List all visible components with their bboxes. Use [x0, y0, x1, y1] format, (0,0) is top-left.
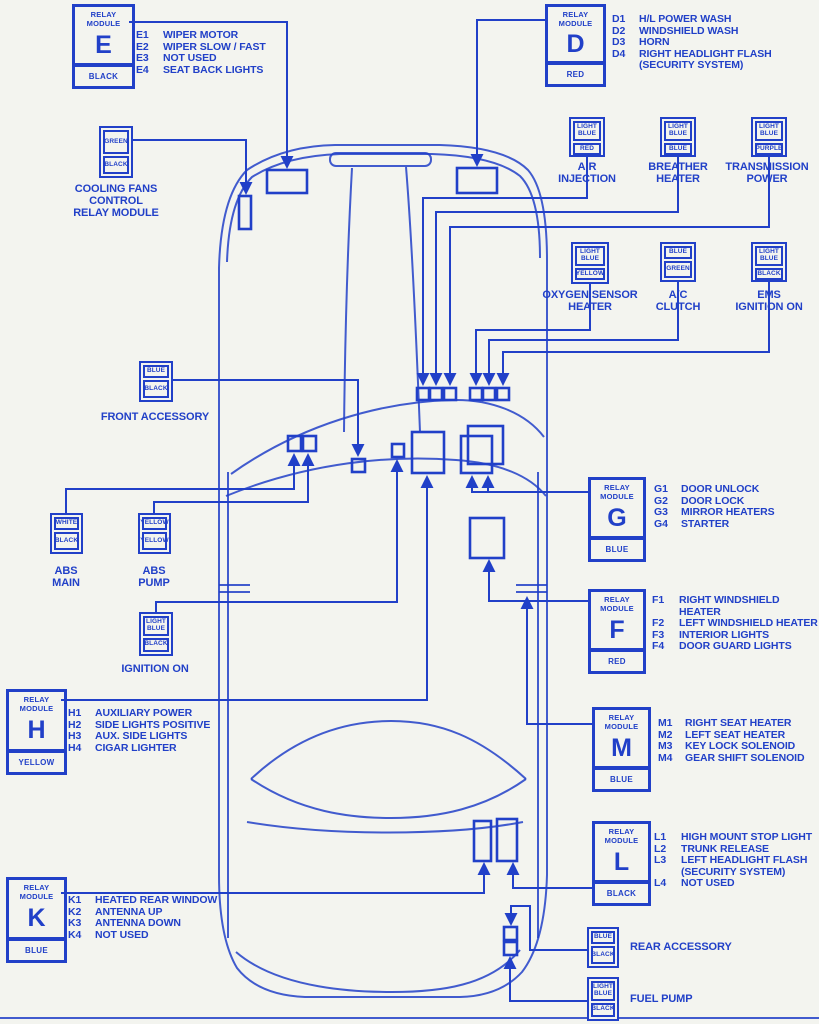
legend-row: K3ANTENNA DOWN: [68, 918, 217, 930]
legend-row: E3NOT USED: [136, 53, 266, 65]
connector-label-rear-accessory: REAR ACCESSORY: [630, 941, 790, 953]
connector-label-breather-heater: BREATHER HEATER: [635, 161, 721, 185]
relay-module-h: RELAY MODULE H: [6, 689, 67, 753]
legend-row: G3MIRROR HEATERS: [654, 507, 775, 519]
module-tag-m: BLUE: [592, 766, 651, 792]
legend-row: K4NOT USED: [68, 930, 217, 942]
connector-label-ac-clutch: A/C CLUTCH: [640, 289, 716, 313]
relay-module-k: RELAY MODULE K: [6, 877, 67, 941]
relay-module-f: RELAY MODULE F: [588, 589, 646, 652]
relay-module-g: RELAY MODULE G: [588, 477, 646, 540]
module-tag-d: RED: [545, 61, 606, 87]
connector-cooling-fans: GREEN BLACK: [99, 126, 133, 178]
fuse-box: [430, 388, 442, 400]
legend-row: M4GEAR SHIFT SOLENOID: [658, 753, 804, 765]
wire-module-m: [527, 598, 592, 724]
module-letter: K: [27, 899, 45, 938]
connector-front-accessory: BLUE BLACK: [139, 361, 173, 402]
module-tag-e: BLACK: [72, 63, 135, 89]
connector-label-fuel-pump: FUEL PUMP: [630, 993, 750, 1005]
connector-label-transmission-power: TRANSMISSION POWER: [712, 161, 819, 185]
module-tag-g: BLUE: [588, 536, 646, 562]
connector-ignition-on: LIGHT BLUE BLACK: [139, 612, 173, 656]
module-letter: F: [609, 611, 624, 649]
legend-row: M3KEY LOCK SOLENOID: [658, 741, 804, 753]
wire-breather-heater: [436, 157, 678, 384]
wire-color-bottom: BLUE: [664, 143, 692, 156]
wire-rear-accessory: [511, 906, 587, 950]
fuse-box: [470, 388, 482, 400]
trunk-lid-line: [247, 822, 523, 833]
wire-color-bottom: PURPLE: [755, 143, 783, 156]
relay-module-e: RELAY MODULE E: [72, 4, 135, 67]
connector-ems-ignition-on: LIGHT BLUE BLACK: [751, 242, 787, 282]
module-tag-k: BLUE: [6, 937, 67, 963]
legend-row: D4RIGHT HEADLIGHT FLASH (SECURITY SYSTEM…: [612, 49, 772, 72]
wire-module-l: [513, 864, 592, 888]
wire-color-bottom: BLACK: [103, 156, 129, 174]
pillar-marks: [219, 585, 547, 592]
hood-box-left: [267, 170, 307, 193]
legend-f: F1RIGHT WINDSHIELD HEATER F2LEFT WINDSHI…: [652, 595, 819, 653]
wire-color-top: LIGHT BLUE: [143, 616, 169, 636]
legend-row: D1H/L POWER WASH: [612, 14, 772, 26]
rear-window-top: [251, 721, 526, 779]
relay-module-l: RELAY MODULE L: [592, 821, 651, 884]
wire-color-bottom: BLACK: [143, 380, 169, 398]
connector-label-abs-main: ABS MAIN: [31, 565, 101, 589]
module-tag-h: YELLOW: [6, 749, 67, 775]
legend-g: G1DOOR UNLOCK G2DOOR LOCK G3MIRROR HEATE…: [654, 484, 775, 530]
legend-m: M1RIGHT SEAT HEATER M2LEFT SEAT HEATER M…: [658, 718, 804, 764]
rear-window-base: [251, 779, 526, 818]
legend-row: L3LEFT HEADLIGHT FLASH (SECURITY SYSTEM): [654, 855, 812, 878]
connector-rear-accessory: BLUE BLACK: [587, 927, 619, 968]
wire-color-bottom: YELLOW: [575, 268, 605, 281]
wire-color-top: LIGHT BLUE: [755, 246, 783, 266]
wire-color-bottom: BLACK: [591, 1003, 615, 1017]
legend-row: E4SEAT BACK LIGHTS: [136, 65, 266, 77]
wire-abs-pump: [154, 455, 308, 513]
wire-color-top: LIGHT BLUE: [664, 121, 692, 141]
wire-color-bottom: BLACK: [54, 532, 79, 550]
console-box-module-f: [470, 518, 504, 558]
connector-breather-heater: LIGHT BLUE BLUE: [660, 117, 696, 157]
relay-module-d: RELAY MODULE D: [545, 4, 606, 65]
wire-color-bottom: BLACK: [143, 638, 169, 652]
module-tag-f: RED: [588, 648, 646, 674]
wire-color-top: WHITE: [54, 517, 79, 530]
legend-row: D3HORN: [612, 37, 772, 49]
connector-label-oxygen-sensor-heater: OXYGEN SENSOR HEATER: [535, 289, 645, 313]
dash-box-module-g-front: [461, 436, 492, 473]
legend-e: E1WIPER MOTOR E2WIPER SLOW / FAST E3NOT …: [136, 30, 266, 76]
wire-module-d: [477, 20, 545, 165]
wire-color-top: YELLOW: [142, 517, 167, 530]
dash-box-module-g-rear: [468, 426, 503, 464]
connector-label-ems-ignition-on: EMS IGNITION ON: [716, 289, 819, 313]
legend-h: H1AUXILIARY POWER H2SIDE LIGHTS POSITIVE…: [68, 708, 210, 754]
fuse-box: [483, 388, 495, 400]
wire-module-g: [472, 477, 588, 492]
wire-color-bottom: YELLOW: [142, 532, 167, 550]
wire-color-top: LIGHT BLUE: [591, 981, 615, 1001]
legend-d: D1H/L POWER WASH D2WINDSHIELD WASH D3HOR…: [612, 14, 772, 72]
wire-color-top: BLUE: [664, 246, 692, 259]
wire-color-bottom: RED: [573, 143, 601, 156]
fuse-box: [444, 388, 456, 400]
wire-color-top: BLUE: [143, 365, 169, 378]
module-letter: D: [566, 26, 584, 62]
legend-row: K1HEATED REAR WINDOW: [68, 895, 217, 907]
hood-line-left: [344, 168, 352, 432]
legend-row: F4DOOR GUARD LIGHTS: [652, 641, 819, 653]
connector-fuel-pump: LIGHT BLUE BLACK: [587, 977, 619, 1021]
connector-transmission-power: LIGHT BLUE PURPLE: [751, 117, 787, 157]
relay-module-m: RELAY MODULE M: [592, 707, 651, 770]
dash-box-ignition: [392, 444, 404, 457]
connector-label-cooling-fans: COOLING FANS CONTROL RELAY MODULE: [46, 183, 186, 219]
legend-row: H3AUX. SIDE LIGHTS: [68, 731, 210, 743]
connector-label-front-accessory: FRONT ACCESSORY: [85, 411, 225, 423]
fender-box-left: [239, 196, 251, 229]
wire-fuel-pump: [510, 958, 587, 1001]
legend-k: K1HEATED REAR WINDOW K2ANTENNA UP K3ANTE…: [68, 895, 217, 941]
legend-row: F1RIGHT WINDSHIELD HEATER: [652, 595, 819, 618]
legend-row: H1AUXILIARY POWER: [68, 708, 210, 720]
fuse-box: [497, 388, 509, 400]
connector-label-ignition-on: IGNITION ON: [85, 663, 225, 675]
connector-label-air-injection: AIR INJECTION: [544, 161, 630, 185]
legend-row: E1WIPER MOTOR: [136, 30, 266, 42]
wire-color-bottom: BLACK: [755, 268, 783, 281]
wiring-diagram: RELAY MODULE E BLACK E1WIPER MOTOR E2WIP…: [0, 0, 819, 1024]
wire-ignition-on: [156, 461, 397, 612]
rear-bumper-line: [236, 950, 520, 992]
wire-color-top: LIGHT BLUE: [575, 246, 605, 266]
dash-box-module-h: [412, 432, 444, 473]
module-tag-l: BLACK: [592, 880, 651, 906]
connector-air-injection: LIGHT BLUE RED: [569, 117, 605, 157]
connector-label-abs-pump: ABS PUMP: [119, 565, 189, 589]
legend-row: G1DOOR UNLOCK: [654, 484, 775, 496]
legend-row: F2LEFT WINDSHIELD HEATER: [652, 618, 819, 630]
wire-color-bottom: BLACK: [591, 946, 615, 964]
rear-box-fuel-pump: [504, 942, 517, 955]
wire-module-k: [61, 864, 484, 893]
hood-box-right: [457, 168, 497, 193]
wire-color-bottom: GREEN: [664, 261, 692, 278]
module-letter: H: [27, 711, 45, 750]
wire-color-top: GREEN: [103, 130, 129, 154]
module-letter: L: [614, 843, 629, 881]
module-letter: E: [95, 26, 112, 64]
legend-row: M1RIGHT SEAT HEATER: [658, 718, 804, 730]
legend-row: L4NOT USED: [654, 878, 812, 890]
connector-abs-pump: YELLOW YELLOW: [138, 513, 171, 554]
dash-box-abs-pump: [303, 436, 316, 451]
legend-row: H4CIGAR LIGHTER: [68, 743, 210, 755]
legend-row: L1HIGH MOUNT STOP LIGHT: [654, 832, 812, 844]
module-letter: G: [607, 499, 626, 537]
wire-color-top: BLUE: [591, 931, 615, 944]
connector-abs-main: WHITE BLACK: [50, 513, 83, 554]
connector-ac-clutch: BLUE GREEN: [660, 242, 696, 282]
wire-air-injection: [423, 157, 587, 384]
legend-row: G4STARTER: [654, 519, 775, 531]
component-boxes: [239, 168, 517, 955]
module-letter: M: [611, 729, 632, 767]
legend-row: D2WINDSHIELD WASH: [612, 26, 772, 38]
wire-color-top: LIGHT BLUE: [755, 121, 783, 141]
wire-color-top: LIGHT BLUE: [573, 121, 601, 141]
connector-oxygen-sensor-heater: LIGHT BLUE YELLOW: [571, 242, 609, 284]
legend-l: L1HIGH MOUNT STOP LIGHT L2TRUNK RELEASE …: [654, 832, 812, 890]
rear-box-accessory: [504, 927, 517, 940]
